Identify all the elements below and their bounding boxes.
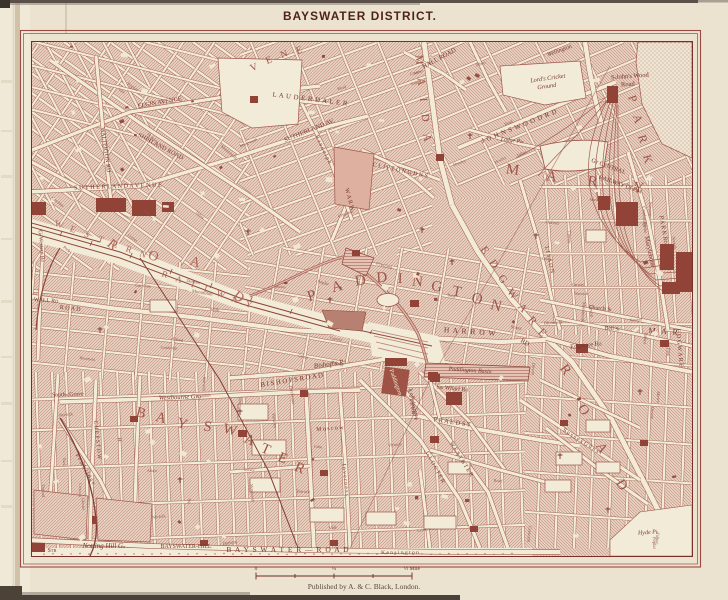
svg-text:Published by A. & C. Black, Lo: Published by A. & C. Black, London.: [308, 582, 421, 591]
svg-text:¼: ¼: [332, 566, 336, 572]
svg-text:BAYSWATER DISTRICT.: BAYSWATER DISTRICT.: [283, 9, 437, 23]
svg-text:0: 0: [255, 566, 258, 572]
svg-text:½ Mile: ½ Mile: [404, 565, 420, 572]
